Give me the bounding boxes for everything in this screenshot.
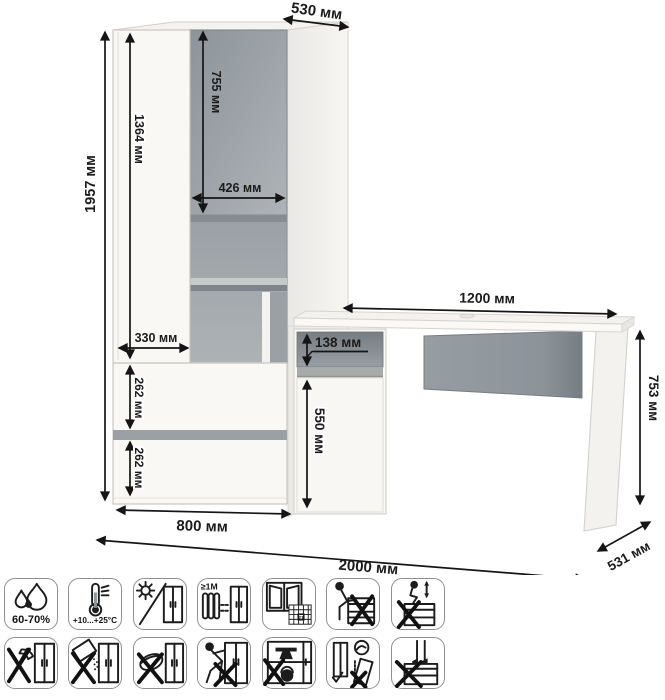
dim-label-262a: 262 мм xyxy=(132,377,146,418)
dim-label-755: 755 мм xyxy=(209,71,223,114)
drawer-handle-strip xyxy=(113,430,287,440)
dim-label-426: 426 мм xyxy=(219,181,262,195)
dim-label-550: 550 мм xyxy=(312,408,327,454)
dim-label-800: 800 мм xyxy=(176,517,228,535)
dim-label-262b: 262 мм xyxy=(132,447,146,488)
dim-line-800 xyxy=(117,510,290,514)
icon-do-not-sit xyxy=(326,578,380,630)
calendar-day-label: 21 xyxy=(298,615,304,621)
icon-keep-1m-from-heat: ≥1M xyxy=(197,578,251,630)
icon-do-not-stand xyxy=(391,637,445,689)
dim-label-2000: 2000 мм xyxy=(338,557,399,575)
icon-no-sharp-impacts xyxy=(4,637,58,689)
icon-do-not-drag xyxy=(197,637,251,689)
dim-label-1957: 1957 мм xyxy=(83,155,99,213)
niche-divider-edge xyxy=(262,292,270,363)
desk-door xyxy=(297,378,383,512)
icon-ventilate-room: 21 xyxy=(262,578,316,630)
icon-humidity-range: 60-70% xyxy=(4,578,58,630)
icon-no-abrasive-cleaning xyxy=(133,637,187,689)
humidity-label: 60-70% xyxy=(12,614,50,626)
dim-label-138: 138 мм xyxy=(315,335,361,350)
desk-back-panel xyxy=(424,331,582,398)
dim-label-1200: 1200 мм xyxy=(459,290,515,307)
desk-right-leg xyxy=(584,326,628,531)
icon-temperature-range: +10...+25°C xyxy=(68,578,122,630)
niche-shelf-edge xyxy=(190,285,287,291)
min-distance-label: ≥1M xyxy=(201,582,218,592)
temperature-label: +10...+25°C xyxy=(73,616,117,625)
cable-grommet xyxy=(460,314,474,318)
desk-handle-strip xyxy=(297,367,383,376)
icon-avoid-sunlight xyxy=(133,578,187,630)
icon-no-spilling xyxy=(68,637,122,689)
icon-do-not-overload xyxy=(262,637,316,689)
furniture-dimension-diagram: 530 мм 1957 мм 1364 мм 755 мм 426 мм 330… xyxy=(0,0,665,575)
niche-shelf-top xyxy=(190,278,287,285)
icon-do-not-jump xyxy=(391,578,445,630)
niche-right-wall xyxy=(269,292,287,363)
desk-pedestal-side xyxy=(288,326,294,517)
dim-label-753: 753 мм xyxy=(646,375,661,421)
dim-label-1364: 1364 мм xyxy=(132,114,146,164)
niche-top-shadow xyxy=(190,215,287,222)
icon-anchor-to-wall xyxy=(326,637,380,689)
dim-label-330: 330 мм xyxy=(135,331,178,345)
